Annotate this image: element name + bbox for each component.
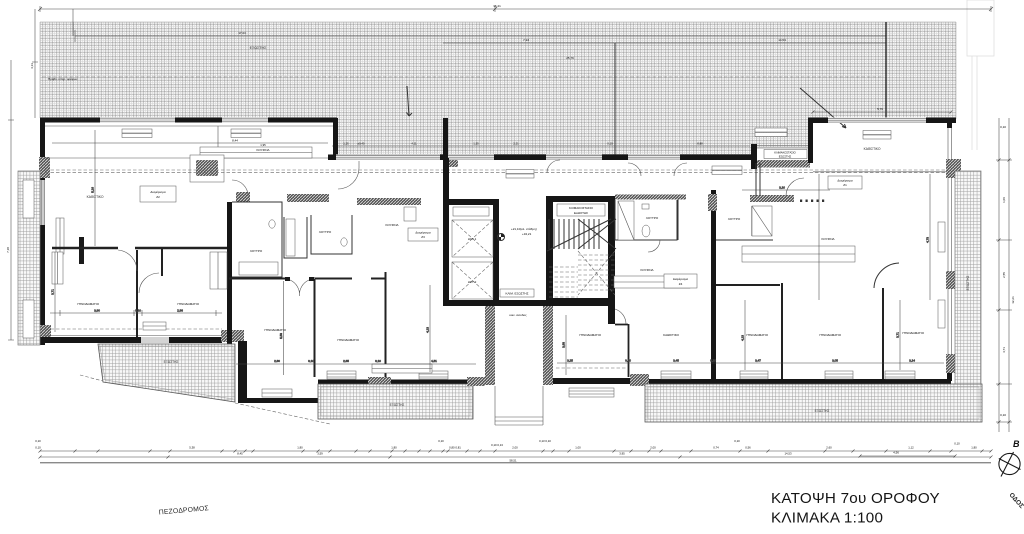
svg-text:1,80: 1,80 <box>391 446 397 450</box>
svg-text:3,10: 3,10 <box>779 186 785 190</box>
svg-text:ΛΟΥΤΡΟ: ΛΟΥΤΡΟ <box>646 216 659 220</box>
svg-text:0,10: 0,10 <box>734 439 740 443</box>
svg-text:+21,10(κλ. στάθμη): +21,10(κλ. στάθμη) <box>511 227 537 231</box>
svg-text:0,10: 0,10 <box>438 439 444 443</box>
svg-text:7,18: 7,18 <box>6 247 10 253</box>
svg-text:12,21: 12,21 <box>1011 296 1015 304</box>
svg-text:Ζ1: Ζ1 <box>843 183 847 187</box>
svg-text:0,10: 0,10 <box>375 359 381 363</box>
svg-text:Διαμέρισμα: Διαμέρισμα <box>837 179 852 183</box>
svg-text:0,10: 0,10 <box>607 142 613 146</box>
svg-text:Διαμέρισμα: Διαμέρισμα <box>673 277 688 281</box>
svg-text:ΚΛΙΜΑΚΟΣΤΑΣΙΟ: ΚΛΙΜΑΚΟΣΤΑΣΙΟ <box>569 206 594 210</box>
svg-text:0,10: 0,10 <box>35 446 41 450</box>
svg-text:ΚΑΤΟΨΗ 7ου ΟΡΟΦΟΥ: ΚΑΤΟΨΗ 7ου ΟΡΟΦΟΥ <box>771 490 940 507</box>
svg-text:ΚΑΘΙΣΤΙΚΟ: ΚΑΘΙΣΤΙΚΟ <box>663 333 680 337</box>
svg-text:ΚΛΙΜΑΚΑ 1:100: ΚΛΙΜΑΚΑ 1:100 <box>771 510 883 527</box>
svg-text:0,10: 0,10 <box>1000 125 1006 129</box>
svg-text:3,05: 3,05 <box>832 359 838 363</box>
svg-text:5,38: 5,38 <box>189 446 195 450</box>
svg-text:5,16: 5,16 <box>91 187 95 193</box>
svg-text:ΚΟΥΖΙΝΑ: ΚΟΥΖΙΝΑ <box>257 148 270 152</box>
svg-text:ΕΞΩΣΤΗΣ: ΕΞΩΣΤΗΣ <box>250 46 267 50</box>
svg-text:4,13: 4,13 <box>741 335 745 341</box>
svg-text:1,06: 1,06 <box>1002 197 1006 203</box>
svg-text:4,13: 4,13 <box>30 63 34 69</box>
svg-text:ΕΞΩΣΤΗΣ: ΕΞΩΣΤΗΣ <box>966 276 970 291</box>
svg-text:1,95: 1,95 <box>260 143 266 147</box>
svg-text:1,25: 1,25 <box>473 142 479 146</box>
svg-text:3,90: 3,90 <box>94 309 100 313</box>
svg-text:4,56: 4,56 <box>893 451 899 455</box>
svg-text:17,03: 17,03 <box>238 31 246 35</box>
svg-text:2,86: 2,86 <box>177 309 183 313</box>
svg-text:2,00: 2,00 <box>512 446 518 450</box>
svg-text:4,73: 4,73 <box>926 237 930 243</box>
svg-text:2,00: 2,00 <box>650 446 656 450</box>
svg-text:0,10: 0,10 <box>710 359 716 363</box>
svg-text:8,44: 8,44 <box>232 139 238 143</box>
svg-text:ΥΠΝΟΔΩΜΑΤΙΟ: ΥΠΝΟΔΩΜΑΤΙΟ <box>177 302 200 306</box>
svg-text:ΥΠΝΟΔΩΜΑΤΙΟ: ΥΠΝΟΔΩΜΑΤΙΟ <box>902 331 925 335</box>
svg-text:3,63: 3,63 <box>562 342 566 348</box>
svg-text:2,55: 2,55 <box>1002 272 1006 278</box>
svg-text:ΕΞΩΣΤΗΣ: ΕΞΩΣΤΗΣ <box>779 155 792 159</box>
svg-text:1,25: 1,25 <box>343 142 349 146</box>
svg-text:0,74: 0,74 <box>713 446 719 450</box>
svg-text:14,54: 14,54 <box>778 38 786 42</box>
svg-text:ΚΟΥΖΙΝΑ: ΚΟΥΖΙΝΑ <box>822 237 835 241</box>
svg-text:8,88: 8,88 <box>697 142 703 146</box>
svg-text:Ζ4: Ζ4 <box>679 282 683 286</box>
svg-text:ΛΟΥΤΡΟ: ΛΟΥΤΡΟ <box>250 249 263 253</box>
svg-text:1,12: 1,12 <box>908 446 914 450</box>
svg-text:ΛΟΥΤΡΟ: ΛΟΥΤΡΟ <box>319 230 332 234</box>
svg-text:3,59: 3,59 <box>317 452 323 456</box>
svg-text:3,71: 3,71 <box>896 332 900 338</box>
svg-text:8,45: 8,45 <box>237 452 243 456</box>
svg-text:1,80: 1,80 <box>971 446 977 450</box>
svg-text:Διαμέρισμα: Διαμέρισμα <box>150 190 165 194</box>
svg-text:ΛΟΥΤΡΟ: ΛΟΥΤΡΟ <box>728 217 741 221</box>
svg-text:ΥΠΝΟΔΩΜΑΤΙΟ: ΥΠΝΟΔΩΜΑΤΙΟ <box>77 302 100 306</box>
svg-text:ΥΠΝΟΔΩΜΑΤΙΟ: ΥΠΝΟΔΩΜΑΤΙΟ <box>337 338 360 342</box>
svg-text:3,14: 3,14 <box>909 359 915 363</box>
svg-text:3,95: 3,95 <box>619 452 625 456</box>
svg-text:1,00: 1,00 <box>575 446 581 450</box>
svg-text:ΥΠΝΟΔΩΜΑΤΙΟ: ΥΠΝΟΔΩΜΑΤΙΟ <box>579 333 602 337</box>
svg-text:14,53: 14,53 <box>785 452 792 456</box>
svg-text:ΕΞΩΣΤΗΣ: ΕΞΩΣΤΗΣ <box>574 211 588 215</box>
svg-text:ΚΑΘΙΣΤΙΚΟ: ΚΑΘΙΣΤΙΚΟ <box>864 147 881 151</box>
svg-text:ΕΞΩΣΤΗΣ: ΕΞΩΣΤΗΣ <box>164 360 179 364</box>
svg-text:Ζ3: Ζ3 <box>421 235 425 239</box>
svg-text:0,56: 0,56 <box>745 446 751 450</box>
svg-text:0,10 0,13: 0,10 0,13 <box>491 443 503 447</box>
svg-text:4,71: 4,71 <box>1002 347 1006 353</box>
svg-text:LIFT 2: LIFT 2 <box>468 280 477 284</box>
svg-text:36,41: 36,41 <box>493 4 501 8</box>
svg-text:±0,40: ±0,40 <box>358 142 365 146</box>
svg-text:5,76: 5,76 <box>877 107 883 111</box>
svg-text:ΕΞΩΣΤΗΣ: ΕΞΩΣΤΗΣ <box>390 403 405 407</box>
svg-text:4,51: 4,51 <box>431 359 437 363</box>
svg-text:0,10: 0,10 <box>1000 413 1006 417</box>
svg-text:Διαμέρισμα: Διαμέρισμα <box>415 231 430 235</box>
svg-text:7,24: 7,24 <box>523 38 529 42</box>
svg-text:ΥΠΝΟΔΩΜΑΤΙΟ: ΥΠΝΟΔΩΜΑΤΙΟ <box>746 333 769 337</box>
svg-text:2,85: 2,85 <box>343 359 349 363</box>
svg-text:0,10: 0,10 <box>135 309 141 313</box>
svg-text:0,10: 0,10 <box>308 359 314 363</box>
svg-text:B: B <box>1013 439 1020 449</box>
svg-text:2,60: 2,60 <box>826 446 832 450</box>
svg-text:0,10: 0,10 <box>954 442 960 446</box>
svg-text:LIFT 1: LIFT 1 <box>468 237 477 241</box>
svg-text:58,51: 58,51 <box>510 459 517 463</box>
svg-text:ΚΛΙΜΑΚΟΣΤΑΣΙΟ: ΚΛΙΜΑΚΟΣΤΑΣΙΟ <box>774 151 796 155</box>
svg-text:2,21: 2,21 <box>513 142 519 146</box>
svg-text:2,80: 2,80 <box>274 359 280 363</box>
svg-text:Ζ2: Ζ2 <box>156 195 160 199</box>
svg-text:3,45: 3,45 <box>673 359 679 363</box>
svg-text:ΕΞΩΣΤΗΣ: ΕΞΩΣΤΗΣ <box>815 409 830 413</box>
svg-text:4,11: 4,11 <box>411 142 417 146</box>
svg-text:3,71: 3,71 <box>51 289 55 295</box>
svg-text:4,13: 4,13 <box>426 327 430 333</box>
svg-text:3,47: 3,47 <box>755 359 761 363</box>
svg-text:ΚΛΙΜ. ΕΞΩΣΤΗΣ: ΚΛΙΜ. ΕΞΩΣΤΗΣ <box>506 292 529 296</box>
svg-text:0,10: 0,10 <box>35 439 41 443</box>
svg-text:ΚΟΥΖΙΝΑ: ΚΟΥΖΙΝΑ <box>386 223 399 227</box>
svg-text:0,10: 0,10 <box>625 359 631 363</box>
svg-text:ΥΠΝΟΔΩΜΑΤΙΟ: ΥΠΝΟΔΩΜΑΤΙΟ <box>819 333 842 337</box>
svg-text:5,53: 5,53 <box>279 333 283 339</box>
svg-text:0,13 0,10: 0,13 0,10 <box>539 439 551 443</box>
svg-text:κοιν. είσοδος: κοιν. είσοδος <box>509 313 527 317</box>
svg-text:ΚΟΥΖΙΝΑ: ΚΟΥΖΙΝΑ <box>641 268 654 272</box>
svg-text:1,80: 1,80 <box>297 446 303 450</box>
svg-text:25,76: 25,76 <box>566 56 574 60</box>
svg-text:3,25: 3,25 <box>567 359 573 363</box>
svg-text:0,80 0,81: 0,80 0,81 <box>449 446 461 450</box>
svg-text:+34,21: +34,21 <box>522 232 532 236</box>
svg-text:Προβλ. υπερ. ορόφων: Προβλ. υπερ. ορόφων <box>48 77 78 81</box>
